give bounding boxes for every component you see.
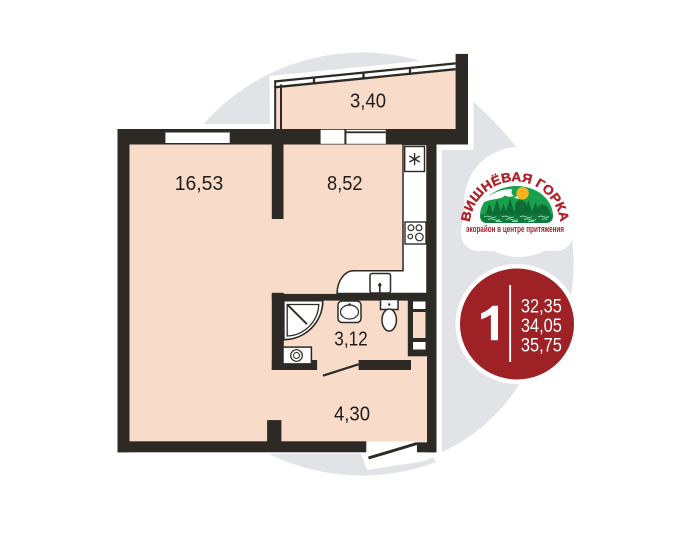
svg-text:35,75: 35,75 [521,335,562,356]
svg-text:34,05: 34,05 [521,316,562,337]
svg-text:экорайон в центре притяжения: экорайон в центре притяжения [466,224,564,234]
svg-text:3,40: 3,40 [350,90,386,113]
svg-text:4,30: 4,30 [334,403,370,426]
svg-text:32,35: 32,35 [521,297,562,318]
svg-text:3,12: 3,12 [334,328,368,351]
svg-text:16,53: 16,53 [175,172,224,195]
svg-text:8,52: 8,52 [327,172,363,195]
